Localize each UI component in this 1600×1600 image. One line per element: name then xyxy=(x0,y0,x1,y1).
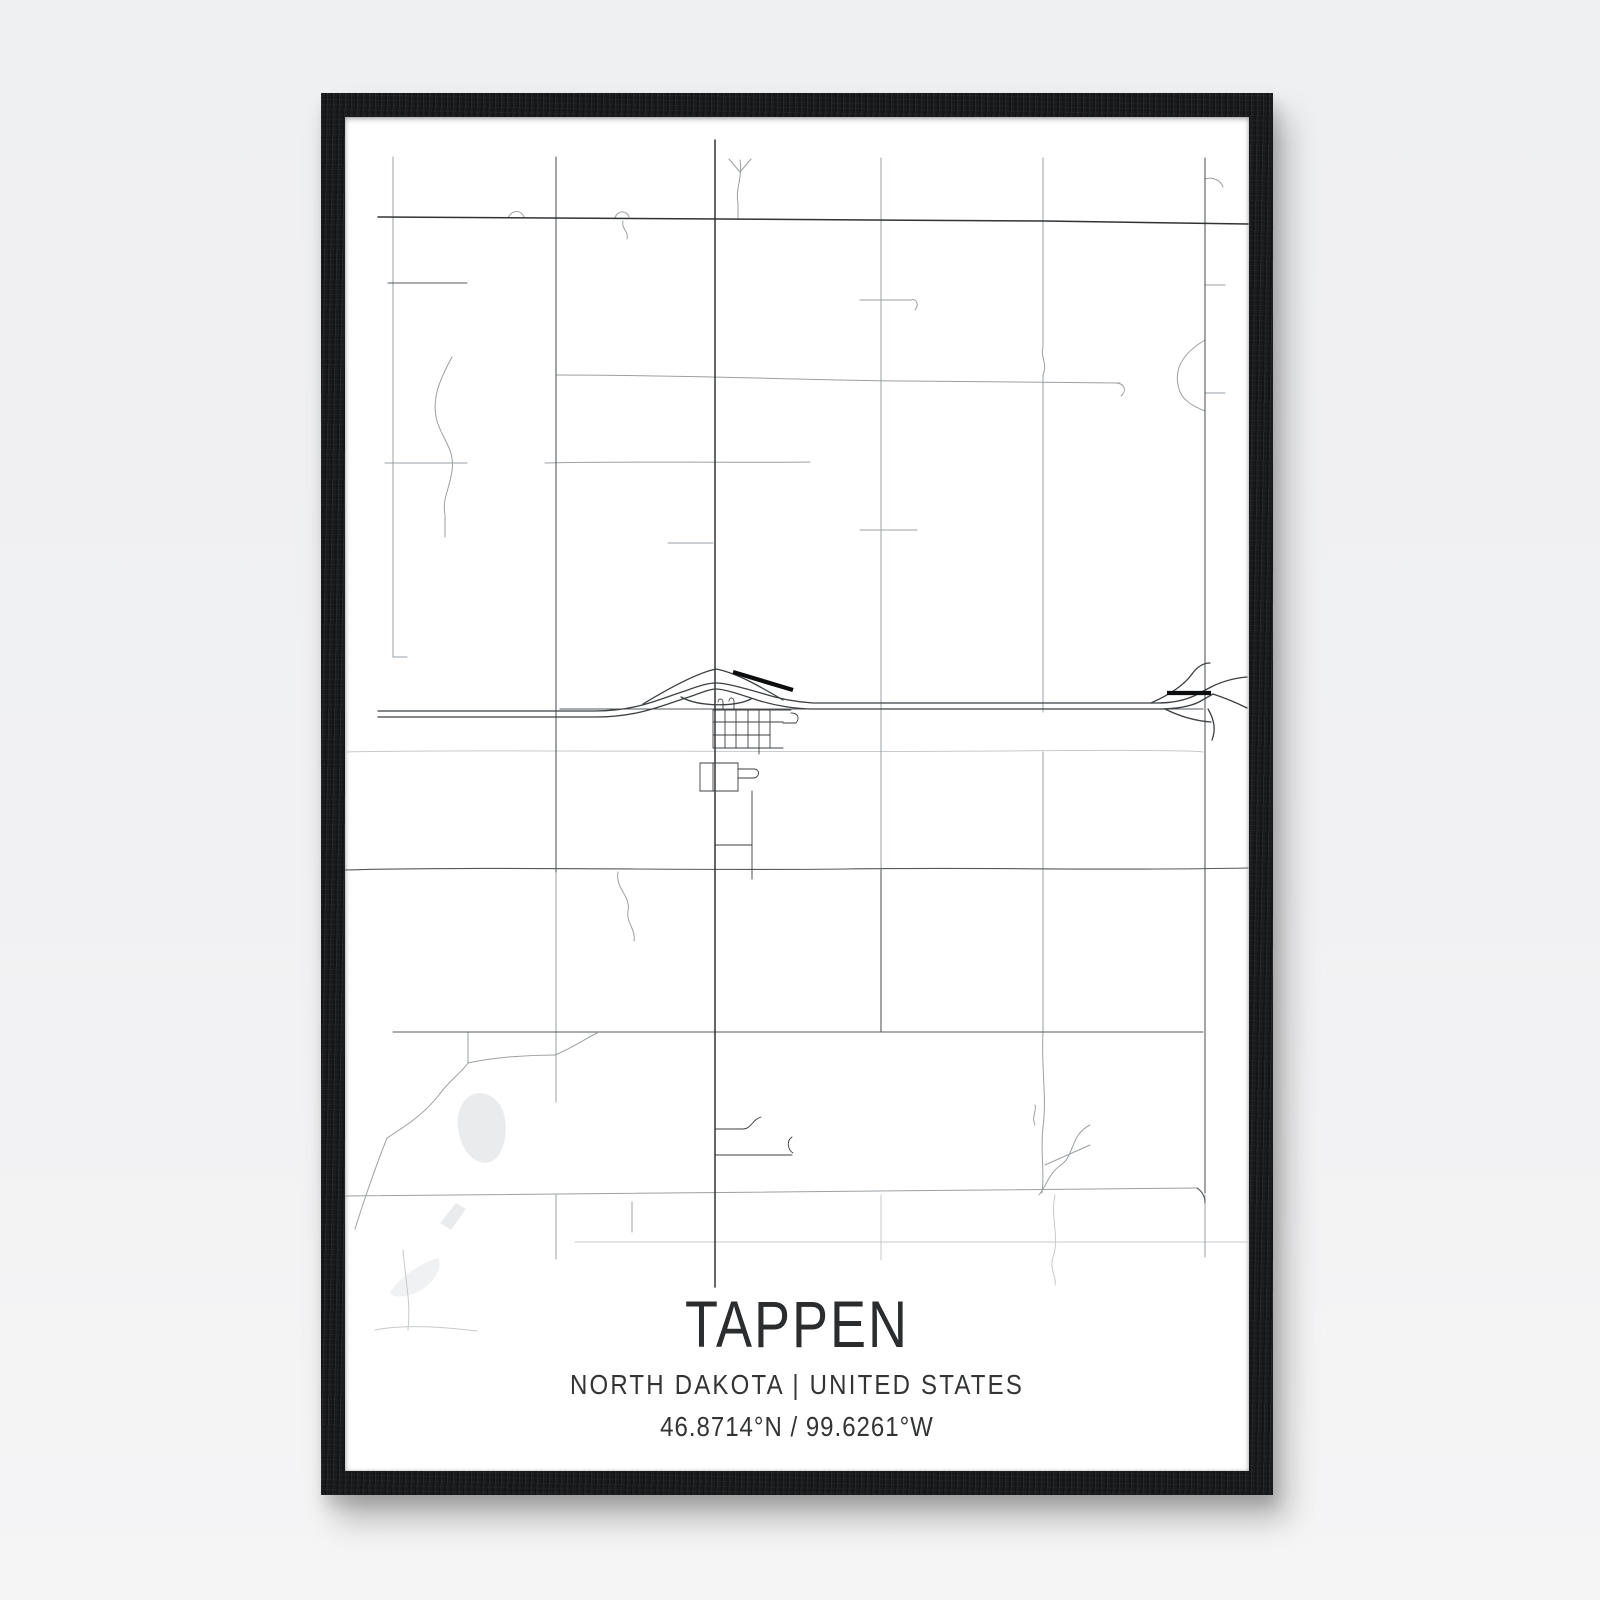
road-layer-highway xyxy=(378,663,1247,740)
poster-frame: TAPPEN NORTH DAKOTA | UNITED STATES 46.8… xyxy=(321,93,1273,1495)
poster-subtitle: NORTH DAKOTA | UNITED STATES xyxy=(345,1370,1249,1402)
wall-background: TAPPEN NORTH DAKOTA | UNITED STATES 46.8… xyxy=(0,0,1600,1600)
poster-coordinates: 46.8714°N / 99.6261°W xyxy=(345,1412,1249,1444)
road-layer-major xyxy=(378,140,1248,1287)
road-layer-railroad xyxy=(733,672,1211,693)
map-poster: TAPPEN NORTH DAKOTA | UNITED STATES 46.8… xyxy=(345,117,1249,1471)
road-layer-faint xyxy=(345,750,1248,1331)
poster-title: TAPPEN xyxy=(345,1285,1249,1366)
poster-label-block: TAPPEN NORTH DAKOTA | UNITED STATES 46.8… xyxy=(345,1292,1249,1442)
water-lake xyxy=(440,1093,506,1230)
road-layer-medium xyxy=(345,157,1248,1203)
street-map-svg xyxy=(345,117,1249,1471)
